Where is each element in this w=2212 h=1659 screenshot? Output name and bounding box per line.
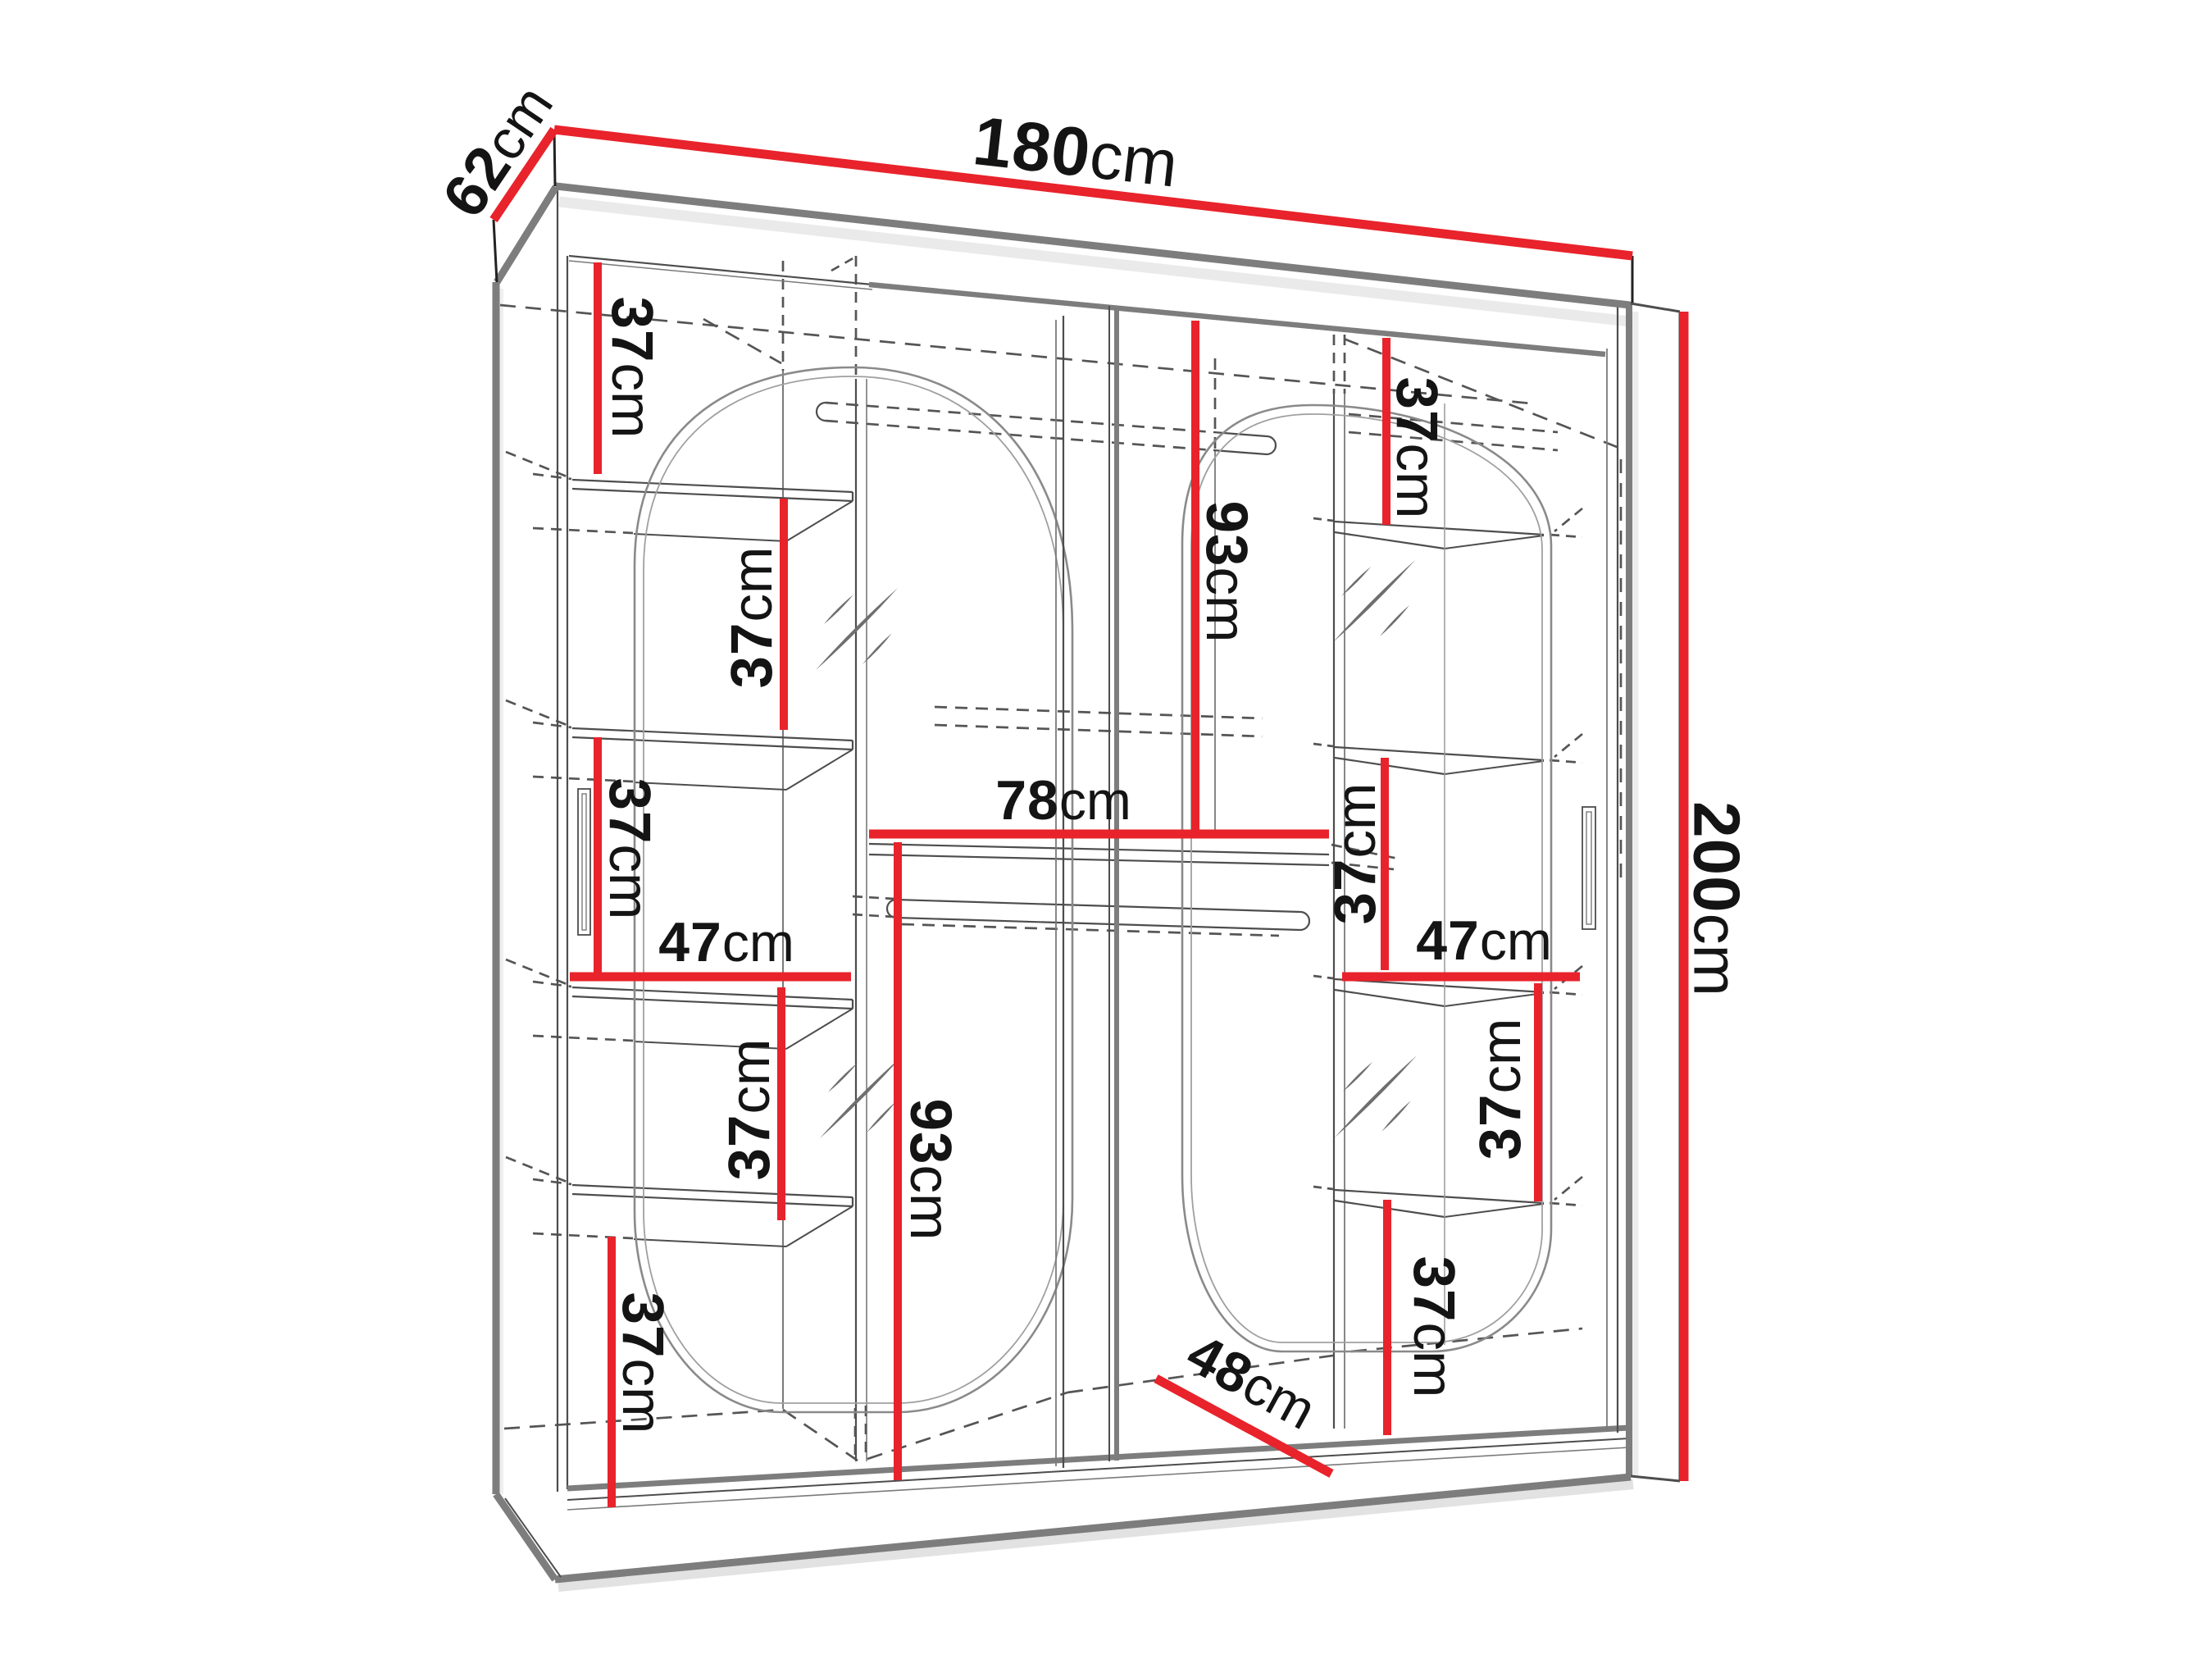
svg-text:93cm: 93cm	[898, 1099, 963, 1241]
svg-text:37cm: 37cm	[1468, 1019, 1533, 1160]
svg-text:37cm: 37cm	[597, 778, 662, 920]
svg-text:37cm: 37cm	[1384, 377, 1449, 519]
svg-text:37cm: 37cm	[1323, 783, 1388, 925]
svg-text:93cm: 93cm	[1194, 501, 1258, 643]
svg-text:37cm: 37cm	[599, 297, 664, 439]
svg-text:47cm: 47cm	[1416, 909, 1552, 972]
svg-text:37cm: 37cm	[717, 1039, 782, 1181]
svg-text:200cm: 200cm	[1681, 801, 1754, 996]
svg-text:37cm: 37cm	[610, 1292, 675, 1434]
svg-text:37cm: 37cm	[1401, 1256, 1466, 1398]
svg-text:78cm: 78cm	[995, 769, 1131, 832]
svg-text:47cm: 47cm	[658, 911, 794, 973]
svg-text:37cm: 37cm	[720, 547, 785, 689]
